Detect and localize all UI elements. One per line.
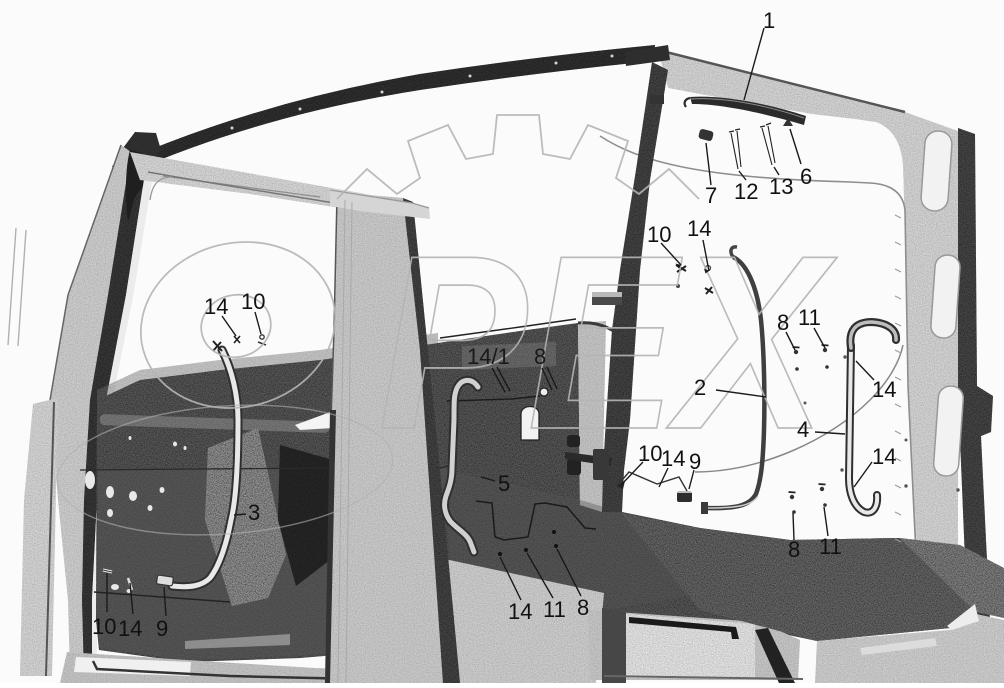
svg-text:14: 14 — [661, 446, 685, 471]
svg-text:РЕХ: РЕХ — [378, 203, 837, 481]
svg-text:14: 14 — [687, 216, 711, 241]
svg-text:12: 12 — [734, 179, 758, 204]
svg-text:11: 11 — [543, 597, 566, 622]
svg-text:9: 9 — [689, 449, 701, 474]
svg-text:14: 14 — [872, 377, 896, 402]
svg-text:14/1: 14/1 — [467, 344, 510, 369]
svg-text:7: 7 — [705, 183, 717, 208]
svg-text:11: 11 — [798, 305, 821, 330]
svg-text:6: 6 — [800, 164, 812, 189]
svg-text:8: 8 — [788, 537, 800, 562]
svg-text:10: 10 — [647, 222, 671, 247]
svg-text:14: 14 — [118, 616, 142, 641]
svg-text:10: 10 — [241, 289, 265, 314]
svg-text:10: 10 — [92, 614, 116, 639]
svg-text:14: 14 — [872, 444, 896, 469]
svg-text:8: 8 — [534, 344, 546, 369]
svg-text:11: 11 — [819, 534, 842, 559]
svg-text:14: 14 — [204, 294, 228, 319]
svg-text:8: 8 — [777, 310, 789, 335]
svg-text:14: 14 — [508, 599, 532, 624]
svg-text:3: 3 — [248, 500, 260, 525]
svg-text:10: 10 — [638, 441, 662, 466]
svg-text:13: 13 — [769, 174, 793, 199]
svg-text:4: 4 — [797, 417, 809, 442]
svg-text:8: 8 — [577, 595, 589, 620]
svg-text:1: 1 — [763, 8, 775, 33]
svg-text:5: 5 — [498, 471, 510, 496]
svg-text:2: 2 — [694, 375, 706, 400]
svg-text:9: 9 — [156, 616, 168, 641]
